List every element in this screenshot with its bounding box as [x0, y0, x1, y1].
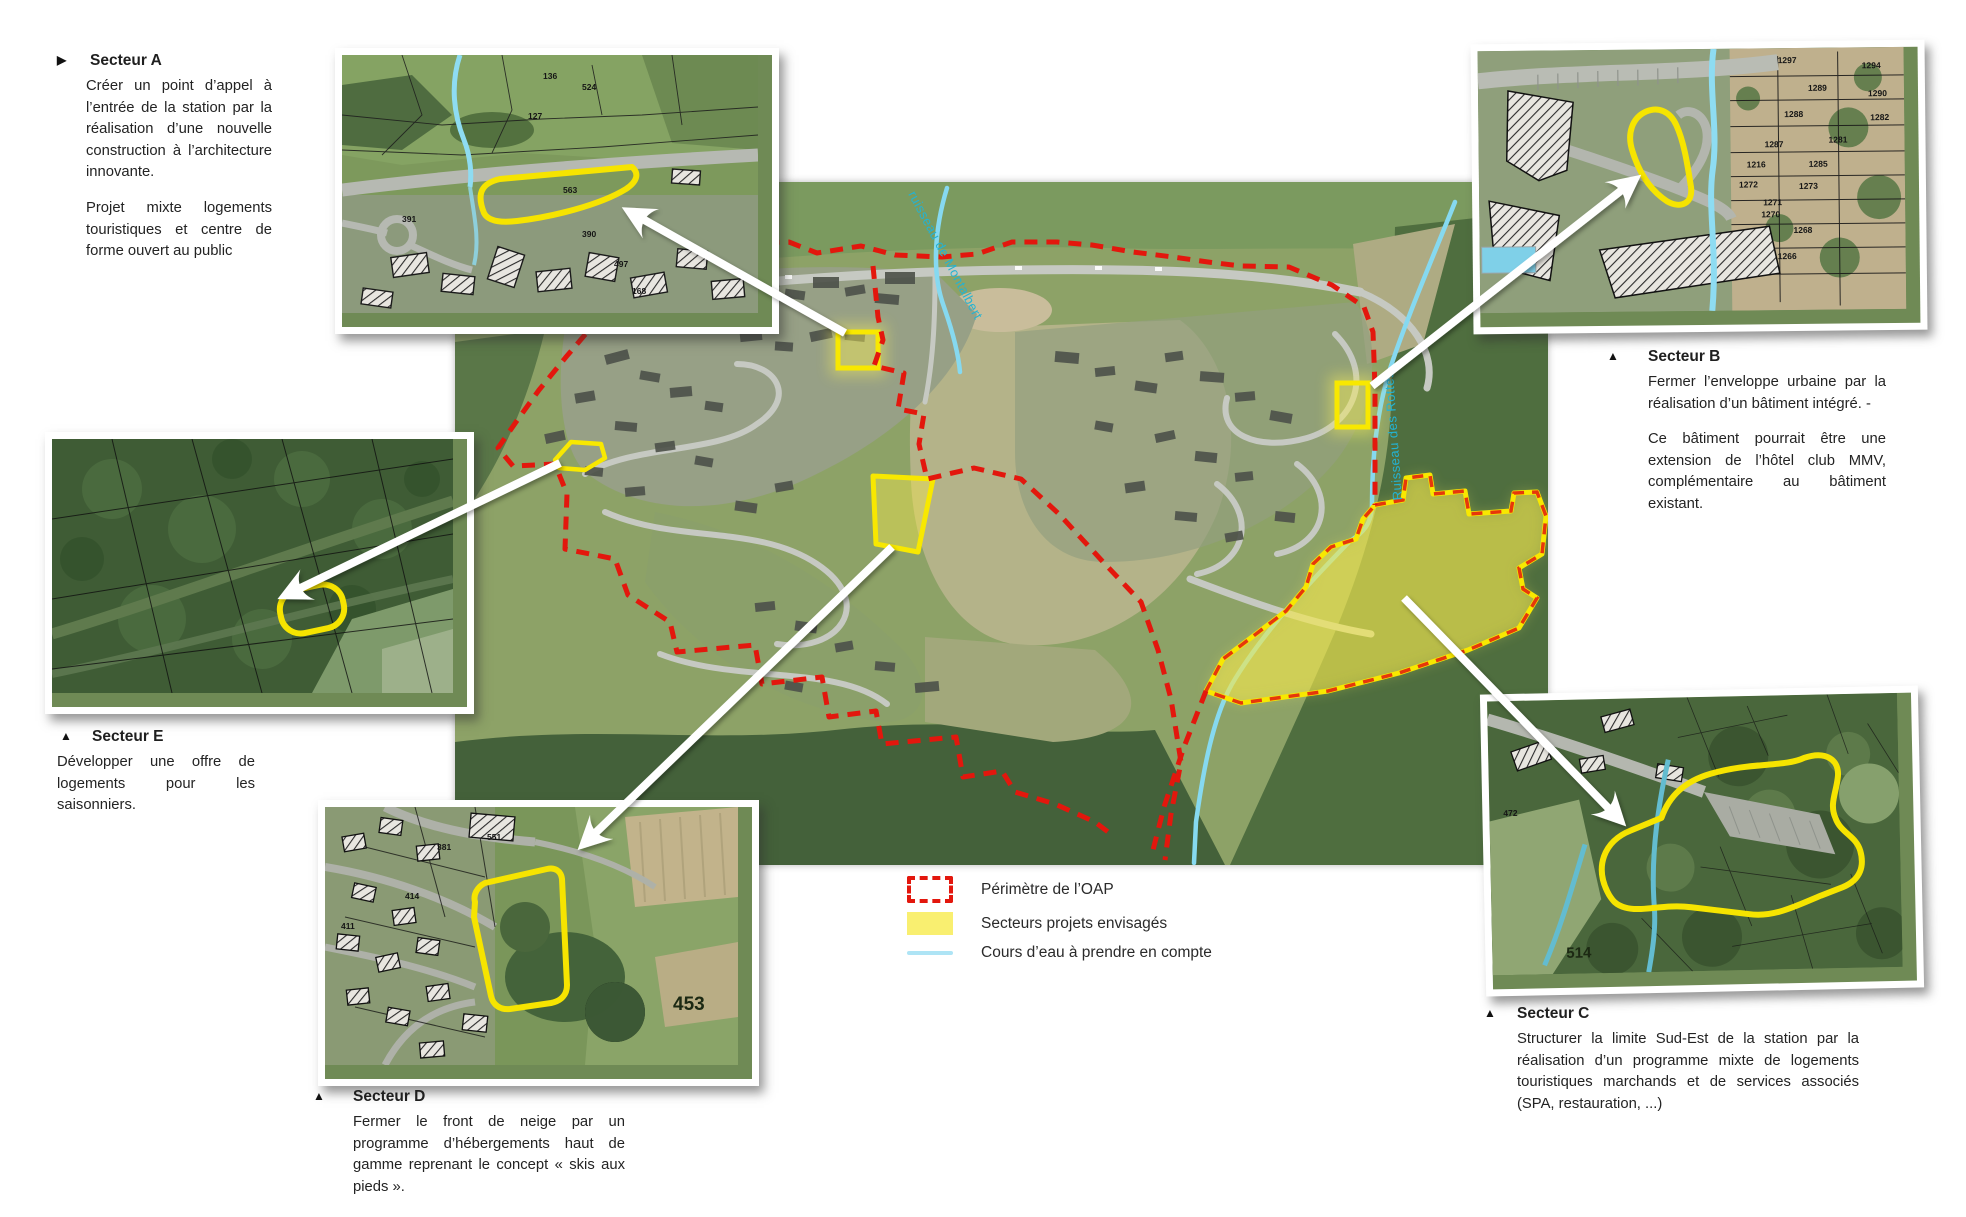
parcel-label: 1266 [1778, 252, 1797, 261]
parcel-label: 1297 [1778, 56, 1797, 65]
parcel-label: 1287 [1765, 140, 1784, 149]
parcel-label: 1294 [1862, 61, 1881, 70]
parcel-label: 563 [563, 186, 577, 195]
sector-e-paragraph: Développer une offre de logements pour l… [57, 752, 255, 817]
legend: Périmètre de l’OAP Secteurs projets envi… [905, 876, 1212, 971]
legend-label-stream: Cours d’eau à prendre en compte [981, 944, 1212, 962]
inset-secteur-a: 136 524 127 563 391 390 497 168 [335, 48, 779, 334]
sector-d-triangle-icon: ▲ [313, 1089, 325, 1103]
sector-text-c: ▲ Secteur C Structurer la limite Sud-Est… [1484, 1005, 1862, 1129]
legend-yellow-swatch [907, 912, 953, 935]
sector-text-e: ▲ Secteur E Développer une offre de loge… [57, 728, 262, 831]
parcel-label: 497 [614, 260, 628, 269]
legend-label-perimeter: Périmètre de l’OAP [981, 881, 1114, 899]
parcel-label: 1216 [1747, 160, 1766, 169]
parcel-label: 1289 [1808, 84, 1827, 93]
sector-b-triangle-icon: ▲ [1607, 349, 1619, 363]
parcel-label: 1285 [1809, 160, 1828, 169]
parcel-label: 1271 [1763, 198, 1782, 207]
legend-blue-line-swatch [907, 951, 953, 955]
sector-c-paragraph: Structurer la limite Sud-Est de la stati… [1517, 1029, 1859, 1115]
sector-text-b: ▲ Secteur B Fermer l’enveloppe urbaine p… [1607, 348, 1892, 530]
oap-map-page: ruisseau de Montalbert Ruisseau des Rott… [0, 0, 1966, 1217]
parcel-label-453: 453 [673, 995, 705, 1014]
sector-a-paragraph: Projet mixte logements touristiques et c… [86, 198, 272, 263]
parcel-label: 1282 [1870, 113, 1889, 122]
legend-row-stream: Cours d’eau à prendre en compte [905, 944, 1212, 962]
sector-b-paragraph: Ce bâtiment pourrait être une extension … [1648, 429, 1886, 515]
parcel-label: 1270 [1761, 210, 1780, 219]
parcel-label: 381 [437, 843, 451, 852]
sector-d-paragraph: Fermer le front de neige par un programm… [353, 1112, 625, 1198]
inset-secteur-d: 381 551 414 411 453 [318, 800, 759, 1086]
parcel-label: 1268 [1793, 226, 1812, 235]
parcel-label: 1273 [1799, 182, 1818, 191]
inset-secteur-b: 1297 1294 1289 1290 1288 1282 1287 1281 … [1470, 40, 1927, 335]
parcel-label: 136 [543, 72, 557, 81]
inset-secteur-e [45, 432, 474, 714]
legend-row-sectors: Secteurs projets envisagés [905, 912, 1212, 935]
sector-c-title: Secteur C [1517, 1005, 1589, 1023]
sector-d-title: Secteur D [353, 1088, 425, 1106]
parcel-label: 414 [405, 892, 419, 901]
sector-text-d: ▲ Secteur D Fermer le front de neige par… [313, 1088, 631, 1212]
parcel-label: 551 [487, 833, 501, 842]
parcel-label: 168 [632, 287, 646, 296]
inset-secteur-c: 472 514 [1480, 685, 1924, 996]
inset-c-graphic [1487, 693, 1903, 976]
parcel-label: 472 [1503, 809, 1517, 818]
sector-e-triangle-icon: ▲ [60, 729, 72, 743]
parcel-label: 390 [582, 230, 596, 239]
sector-b-paragraph: Fermer l’enveloppe urbaine par la réalis… [1648, 372, 1886, 415]
sector-b-title: Secteur B [1648, 348, 1720, 366]
sector-a-title: Secteur A [90, 52, 162, 70]
inset-e-graphic [52, 439, 453, 693]
parcel-label: 1288 [1784, 110, 1803, 119]
inset-b-graphic [1478, 47, 1907, 313]
parcel-label: 524 [582, 83, 596, 92]
inset-a-graphic [342, 55, 758, 313]
parcel-label-514: 514 [1566, 945, 1591, 961]
sector-text-a: ▶ Secteur A Créer un point d’appel à l’e… [57, 52, 275, 277]
parcel-label: 1281 [1828, 135, 1847, 144]
parcel-label: 391 [402, 215, 416, 224]
parcel-label: 411 [341, 922, 355, 931]
inset-d-graphic [325, 807, 738, 1065]
legend-label-sectors: Secteurs projets envisagés [981, 915, 1167, 933]
legend-row-perimeter: Périmètre de l’OAP [905, 876, 1212, 903]
legend-red-dashed-swatch [907, 876, 953, 903]
parcel-label: 1290 [1868, 89, 1887, 98]
parcel-label: 1272 [1739, 180, 1758, 189]
sector-a-triangle-icon: ▶ [57, 53, 66, 67]
sector-e-title: Secteur E [92, 728, 164, 746]
sector-a-paragraph: Créer un point d’appel à l’entrée de la … [86, 76, 272, 184]
parcel-label: 127 [528, 112, 542, 121]
sector-c-triangle-icon: ▲ [1484, 1006, 1496, 1020]
